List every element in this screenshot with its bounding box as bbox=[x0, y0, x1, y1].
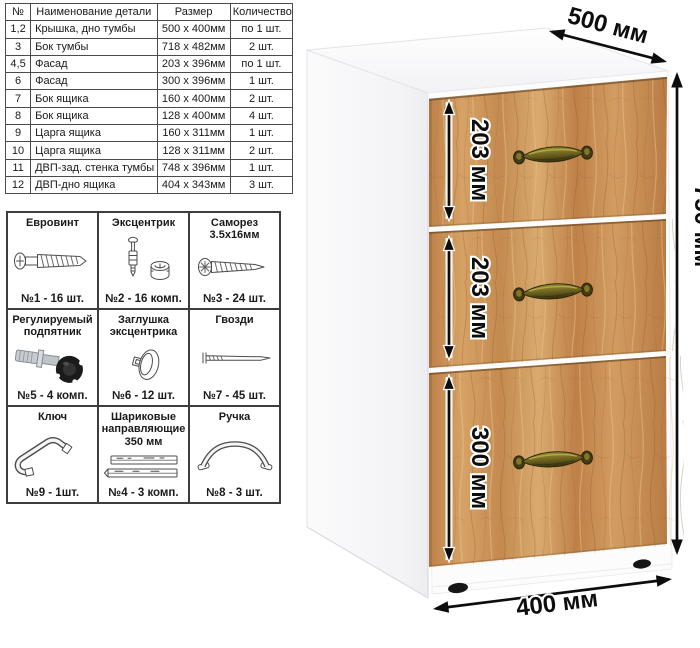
drawer-1-label: 203 мм bbox=[466, 119, 493, 201]
height-label: 750 мм bbox=[689, 185, 700, 267]
drawer-2-label: 203 мм bbox=[466, 257, 493, 339]
width-label: 400 мм bbox=[515, 585, 600, 622]
cabinet-drawing: 500 мм 750 мм 400 мм 203 мм bbox=[0, 0, 700, 648]
cabinet-side-panel bbox=[307, 50, 428, 598]
drawer-3-label: 300 мм bbox=[466, 427, 493, 509]
assembly-sheet: № Наименование детали Размер Количество … bbox=[0, 0, 700, 648]
